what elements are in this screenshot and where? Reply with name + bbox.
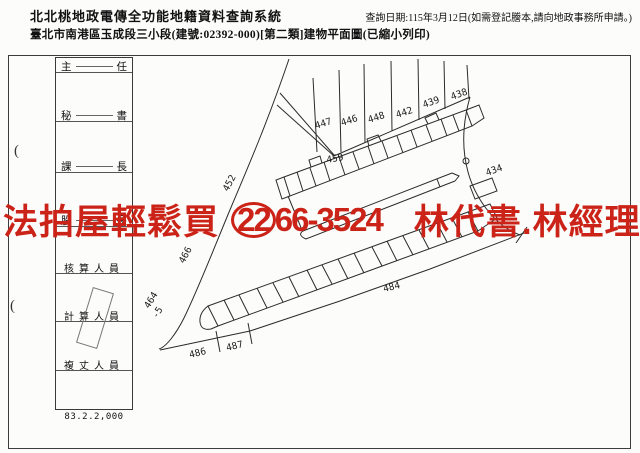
row-label-right: 書 — [117, 108, 128, 123]
watermark-phone: 22 66-3524 — [231, 201, 382, 239]
system-title: 北北桃地政電傳全功能地籍資料查詢系統 — [30, 6, 282, 25]
strip-row-director: 主 任 — [56, 60, 132, 73]
signature-line — [76, 166, 113, 167]
strip-row-secretary: 秘 書 — [56, 109, 132, 122]
margin-mark: ( — [14, 143, 19, 160]
phone-rest: 66-3524 — [275, 201, 382, 239]
row-label-left: 秘 — [61, 108, 72, 123]
watermark: 法拍屋輕鬆買 22 66-3524 林代書.林經理 — [3, 194, 640, 245]
signature-line — [76, 115, 113, 116]
watermark-left-text: 法拍屋輕鬆買 — [3, 194, 219, 245]
query-date: 查詢日期:115年3月12日(如需登記謄本,請向地政事務所申請。) — [365, 9, 632, 24]
margin-mark: ( — [10, 298, 15, 315]
row-label-right: 任 — [117, 59, 128, 74]
strip-row-section-chief: 課 長 — [56, 160, 132, 173]
row-label: 複丈人員 — [64, 357, 124, 372]
strip-row-surveyor: 複丈人員 — [56, 358, 132, 371]
strip-row-checker: 核算人員 — [56, 261, 132, 274]
row-label: 核算人員 — [64, 260, 124, 275]
signature-line — [76, 66, 113, 67]
circled-digits: 22 — [231, 202, 276, 238]
form-number: 83.2.2,000 — [52, 412, 136, 422]
land-registry-printout: { "header": { "system_title": "北北桃地政電傳全功… — [0, 0, 640, 453]
row-label-left: 課 — [61, 159, 72, 174]
document-subtitle: 臺北市南港區玉成段三小段(建號:02392-000)[第二類]建物平面圖(已縮小… — [30, 26, 430, 42]
watermark-right-text: 林代書.林經理 — [414, 194, 640, 245]
row-label-left: 主 — [61, 59, 72, 74]
row-label-right: 長 — [117, 159, 128, 174]
